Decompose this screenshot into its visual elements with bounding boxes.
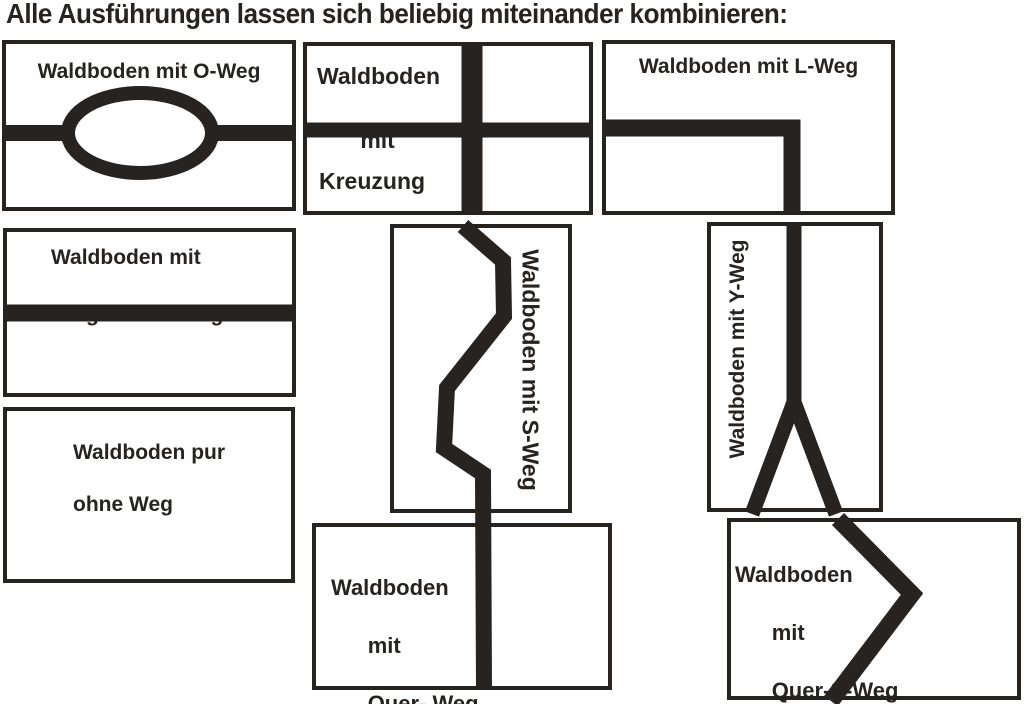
panel-quer-s-weg: Waldboden mit Quer-S-Weg [727,518,1021,700]
panel-kreuzung-label-bottom: Kreuzung [319,166,425,196]
page-title: Alle Ausführungen lassen sich beliebig m… [6,0,787,30]
panel-o-weg: Waldboden mit O-Weg [2,40,296,211]
panel-quer-s-line3: Quer-S-Weg [772,678,899,703]
diagram-canvas: Alle Ausführungen lassen sich beliebig m… [0,0,1032,704]
panel-quer-line3: Quer- Weg [368,691,479,704]
panel-quer-weg-label: Waldboden mit Quer- Weg [331,573,479,704]
panel-quer-line2: mit [368,633,401,658]
panel-kreuzung: Waldboden mit Kreuzung [303,42,593,215]
panel-o-weg-label: Waldboden mit O-Weg [6,58,292,86]
panel-quer-s-weg-label: Waldboden mit Quer-S-Weg [735,560,898,704]
panel-quer-line1: Waldboden [331,575,449,600]
panel-pur-line1: Waldboden pur [73,439,225,467]
panel-gerade-line2: geradem Weg [86,303,223,326]
panel-gerade-line1: Waldboden mit [51,246,201,269]
panel-quer-s-line2: mit [772,620,805,645]
panel-kreuzung-line1: Waldboden [317,63,440,89]
panel-pur: Waldboden pur ohne Weg [3,407,295,583]
panel-gerade-label: Waldboden mit geradem Weg [51,244,223,357]
panel-l-weg: Waldboden mit L-Weg [602,40,895,215]
panel-s-weg-label: Waldboden mit S-Weg [517,249,544,491]
panel-quer-weg: Waldboden mit Quer- Weg [312,523,612,690]
panel-gerade: Waldboden mit geradem Weg [3,228,296,397]
panel-quer-s-line1: Waldboden [735,562,853,587]
panel-kreuzung-line2: mit [360,127,395,153]
panel-y-weg-label: Waldboden mit Y-Weg [726,240,750,459]
panel-l-weg-label: Waldboden mit L-Weg [606,53,891,81]
panel-pur-line2: ohne Weg [73,491,173,519]
panel-s-weg [390,224,572,513]
